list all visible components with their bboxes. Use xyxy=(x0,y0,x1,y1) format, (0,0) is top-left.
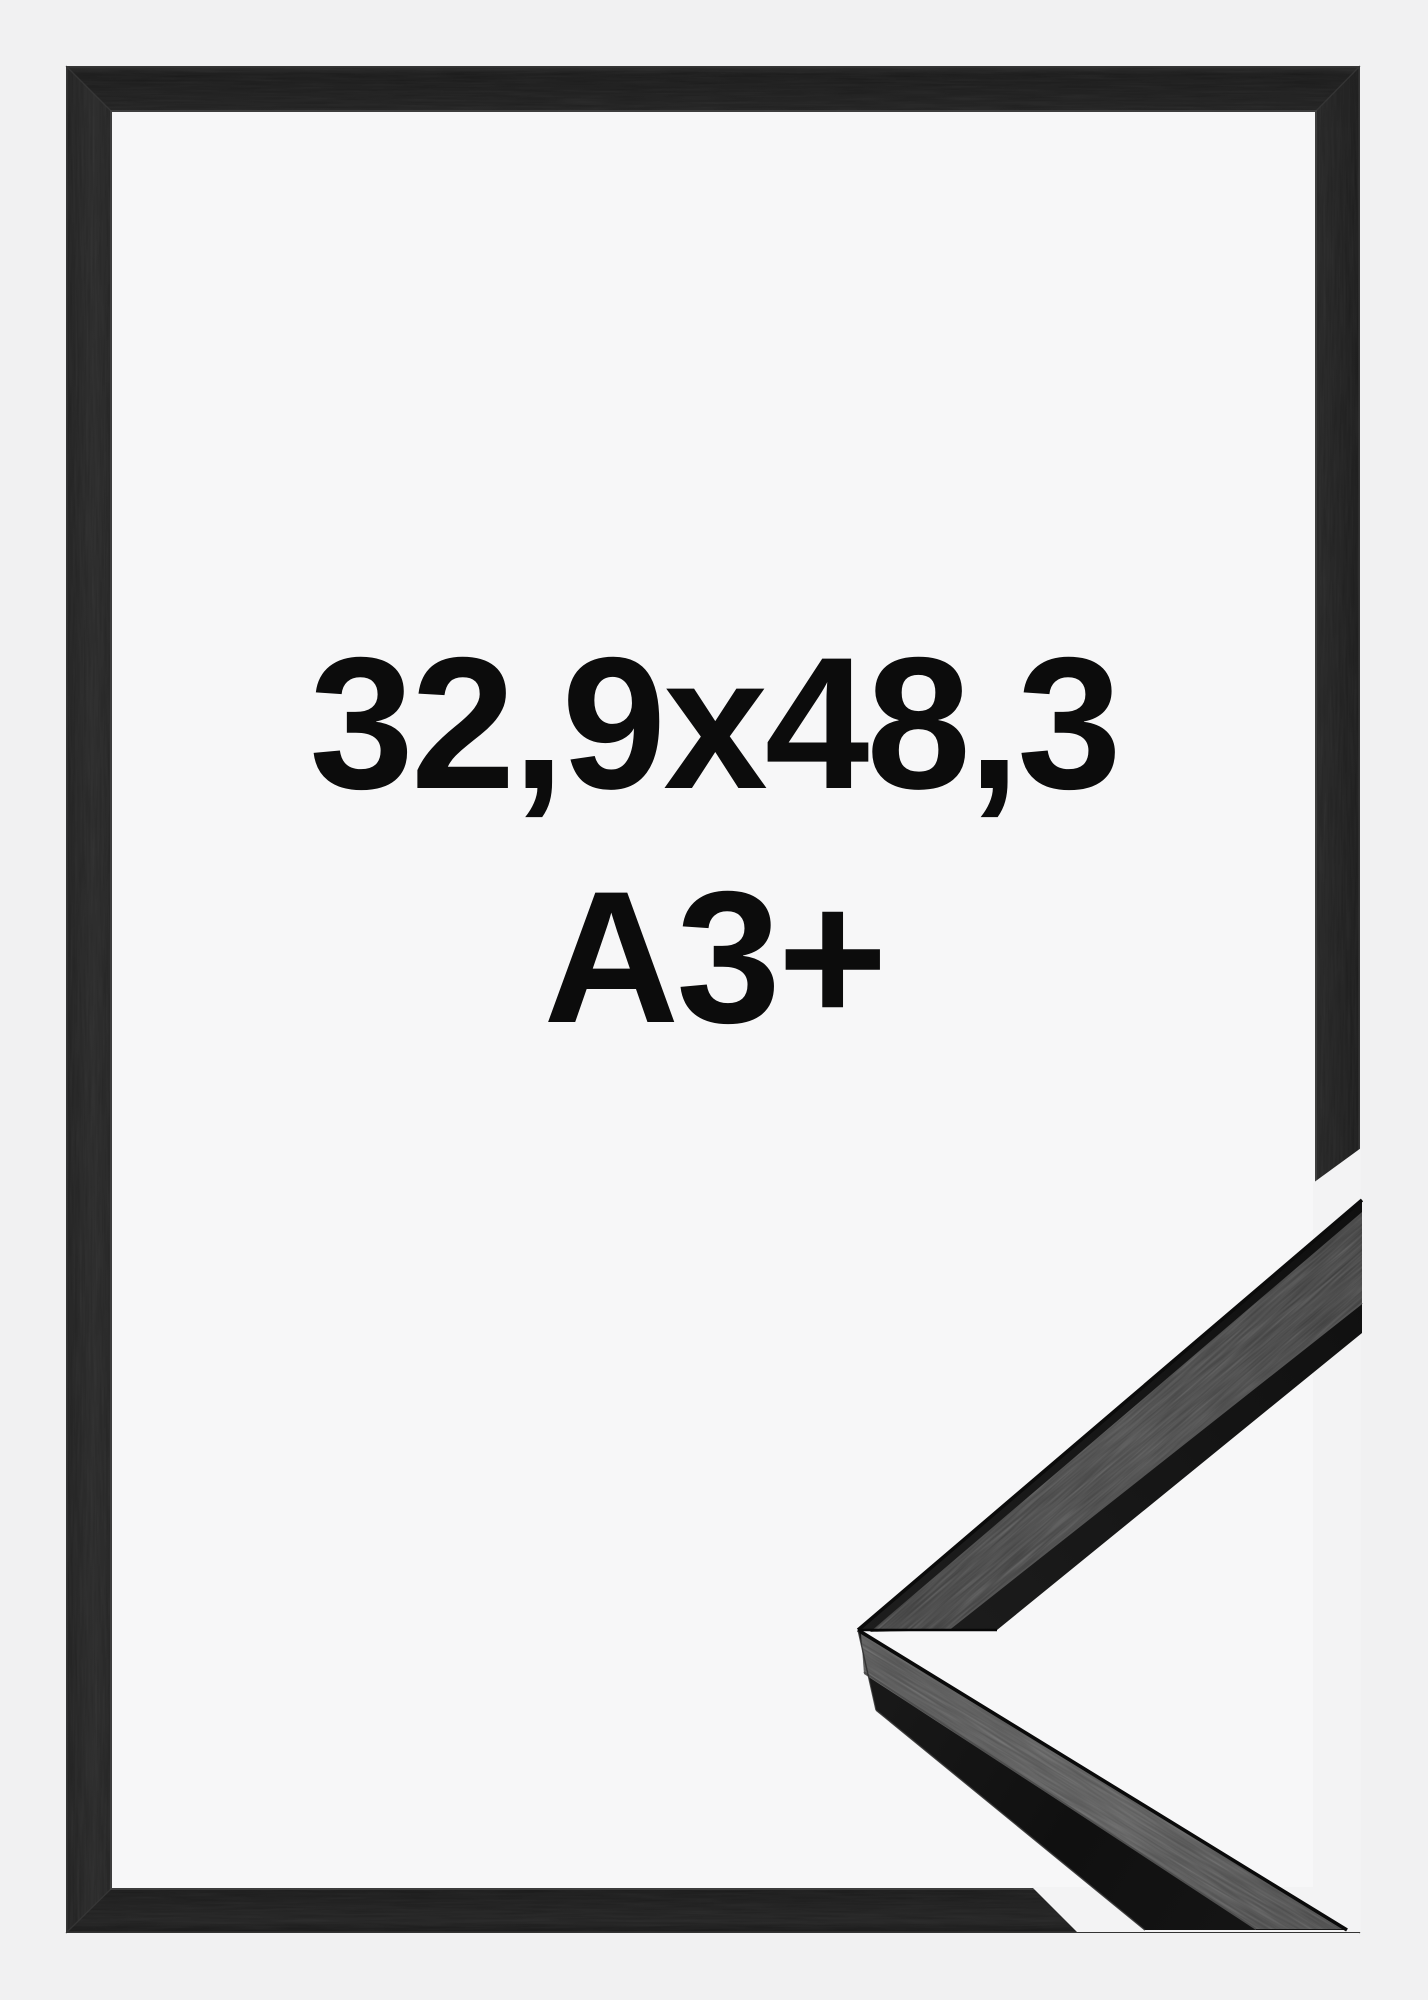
paper-format-text: A3+ xyxy=(0,863,1428,1051)
size-dimensions-text: 32,9x48,3 xyxy=(0,629,1428,817)
product-photo: 32,9x48,3 A3+ xyxy=(0,0,1428,2000)
